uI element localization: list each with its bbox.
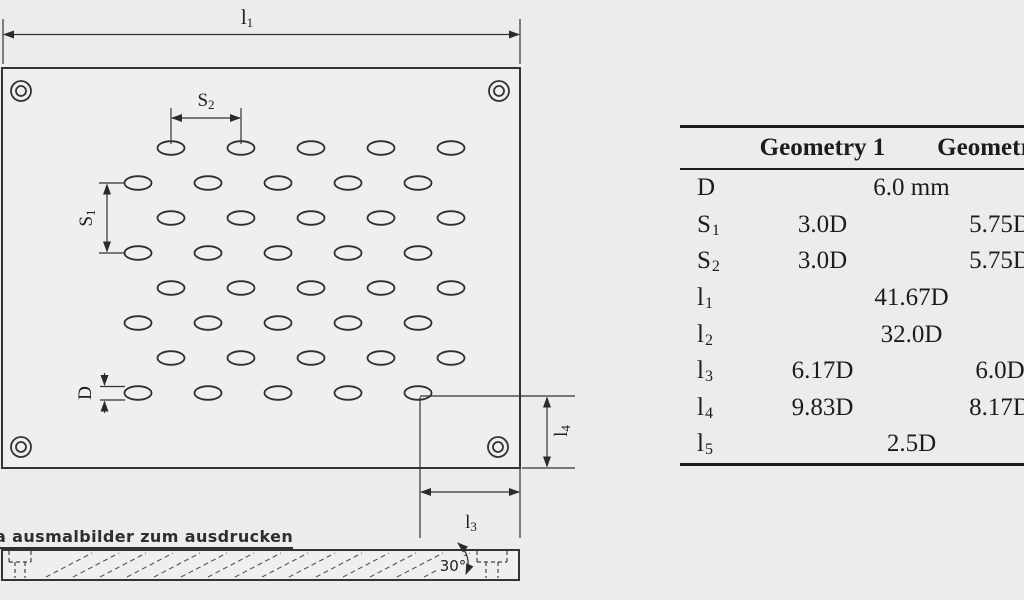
hole [335, 386, 362, 400]
column-header-geometry-2: Geometry 2 [900, 134, 1024, 162]
geometry-1-value: 3.0D [745, 247, 900, 275]
table-row: D 6.0 mm [680, 170, 1024, 207]
row-label: l1 [680, 284, 745, 312]
geometry-2-value: 5.75D [900, 211, 1024, 239]
hole [125, 316, 152, 330]
row-label: l4 [680, 394, 745, 422]
hole [125, 386, 152, 400]
hole [265, 316, 292, 330]
dimension-label-l1: l1 [241, 5, 253, 30]
hole [195, 386, 222, 400]
hole [265, 246, 292, 260]
row-label-base: S [697, 211, 711, 238]
row-label-sub: 5 [705, 441, 713, 458]
shared-value: 6.0 mm [745, 174, 1024, 202]
row-label: S1 [680, 211, 745, 239]
shared-value: 32.0D [745, 321, 1024, 349]
hole [438, 141, 465, 155]
hole [125, 246, 152, 260]
hole [405, 176, 432, 190]
row-label-base: l [697, 284, 704, 311]
shared-value: 41.67D [745, 284, 1024, 312]
hole [195, 246, 222, 260]
row-label: S2 [680, 247, 745, 275]
row-label-sub: 1 [712, 222, 720, 239]
watermark-caption: a ausmalbilder zum ausdrucken [0, 528, 293, 549]
table-bottom-rule [680, 463, 1024, 466]
geometry-2-value: 6.0D [900, 357, 1024, 385]
dimension-label-d: D [75, 386, 96, 400]
column-header-geometry-1: Geometry 1 [745, 134, 900, 162]
hole [228, 351, 255, 365]
row-label-sub: 2 [712, 258, 720, 275]
row-label-sub: 4 [705, 405, 713, 422]
table-header-row: Geometry 1 Geometry 2 [680, 128, 1024, 168]
row-label: l3 [680, 357, 745, 385]
hole [335, 246, 362, 260]
row-label-base: l [697, 357, 704, 384]
hole [368, 211, 395, 225]
hole [368, 351, 395, 365]
hole [195, 316, 222, 330]
hole [158, 211, 185, 225]
row-label-sub: 1 [705, 295, 713, 312]
hole [438, 351, 465, 365]
dimension-label-l3: l3 [465, 512, 477, 534]
hole [405, 316, 432, 330]
row-label: l5 [680, 430, 745, 458]
hole [298, 351, 325, 365]
hole [438, 281, 465, 295]
hole [335, 176, 362, 190]
table-row: S2 3.0D 5.75D [680, 243, 1024, 280]
row-label-base: l [697, 321, 704, 348]
hole [368, 281, 395, 295]
hole [265, 176, 292, 190]
geometry-1-value: 9.83D [745, 394, 900, 422]
hole [368, 141, 395, 155]
hole [158, 281, 185, 295]
table-row: l4 9.83D 8.17D [680, 390, 1024, 427]
table-row: l3 6.17D 6.0D [680, 353, 1024, 390]
hole [158, 351, 185, 365]
row-label: D [680, 174, 745, 202]
hole [228, 211, 255, 225]
plate-outline [2, 68, 520, 468]
angle-label: 30° [440, 557, 467, 575]
table-row: l5 2.5D [680, 426, 1024, 463]
table-row: l2 32.0D [680, 316, 1024, 353]
hole [335, 316, 362, 330]
geometry-2-value: 5.75D [900, 247, 1024, 275]
row-label-sub: 2 [705, 332, 713, 349]
row-label-sub: 3 [705, 368, 713, 385]
hole [405, 386, 432, 400]
row-label-base: S [697, 247, 711, 274]
geometry-1-value: 6.17D [745, 357, 900, 385]
hole [438, 211, 465, 225]
geometry-table: Geometry 1 Geometry 2 D 6.0 mm S1 3.0D 5… [680, 125, 1024, 466]
hole [298, 141, 325, 155]
dimension-l1 [3, 19, 520, 64]
shared-value: 2.5D [745, 430, 1024, 458]
hole [298, 281, 325, 295]
row-label-base: D [697, 174, 715, 201]
table-row: S1 3.0D 5.75D [680, 207, 1024, 244]
row-label-base: l [697, 430, 704, 457]
hole [265, 386, 292, 400]
hole [298, 211, 325, 225]
hole [228, 281, 255, 295]
geometry-2-value: 8.17D [900, 394, 1024, 422]
table-row: l1 41.67D [680, 280, 1024, 317]
hole [195, 176, 222, 190]
geometry-1-value: 3.0D [745, 211, 900, 239]
row-label-base: l [697, 394, 704, 421]
hole [405, 246, 432, 260]
dimension-label-l4: l4 [551, 425, 573, 437]
hole [125, 176, 152, 190]
row-label: l2 [680, 321, 745, 349]
